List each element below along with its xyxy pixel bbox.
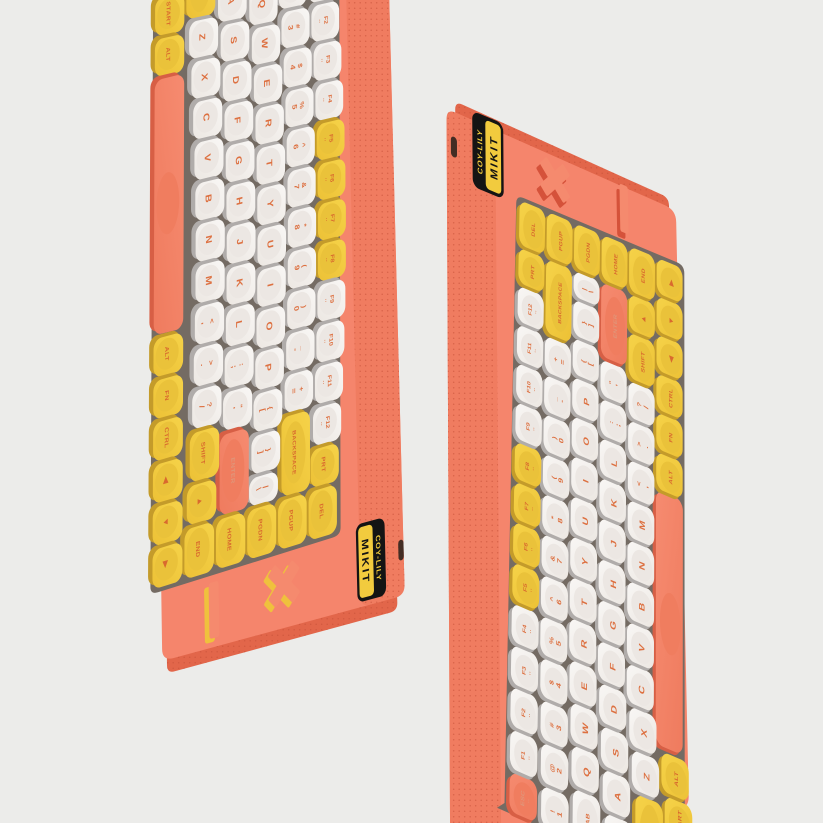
svg-text:START: START [165,1,171,27]
svg-text:ALT: ALT [674,771,679,788]
svg-text:F12: F12 [324,415,330,430]
svg-text:ENTER: ENTER [614,313,619,340]
svg-text:ESC: ESC [520,789,526,807]
svg-text:END: END [642,267,647,284]
svg-text:BACKSPACE: BACKSPACE [558,281,563,325]
svg-text:PGUP: PGUP [559,230,564,252]
svg-text:COY-LILY: COY-LILY [374,534,383,582]
svg-text:COY-LILY: COY-LILY [476,128,484,176]
svg-text:ENTER: ENTER [229,457,235,485]
svg-text:END: END [194,540,200,558]
svg-text:DEL: DEL [318,503,324,520]
svg-text:SHIFT: SHIFT [640,351,646,374]
svg-text:F11: F11 [326,374,332,388]
svg-text:SHIFT: SHIFT [200,441,206,465]
svg-text:PGDN: PGDN [257,518,263,542]
svg-text:PRT: PRT [320,456,326,473]
svg-text:BACKSPACE: BACKSPACE [291,430,296,476]
svg-text:ALT: ALT [668,469,674,485]
svg-text:FN: FN [163,390,169,402]
svg-text:START: START [678,809,683,823]
svg-text:F10: F10 [328,333,334,347]
svg-text:DEL: DEL [532,222,537,238]
svg-text:PGDN: PGDN [586,242,591,264]
svg-text:HOME: HOME [614,253,619,276]
svg-text:PGUP: PGUP [288,509,294,533]
svg-text:MIKIT: MIKIT [359,538,370,586]
svg-text:CTRL: CTRL [163,427,169,450]
svg-text:HOME: HOME [226,527,232,552]
svg-text:ALT: ALT [165,47,171,63]
svg-text:ALT: ALT [163,346,169,362]
svg-text:PRT: PRT [531,264,536,280]
svg-text:MIKIT: MIKIT [489,133,501,182]
svg-text:CTRL: CTRL [668,388,674,410]
